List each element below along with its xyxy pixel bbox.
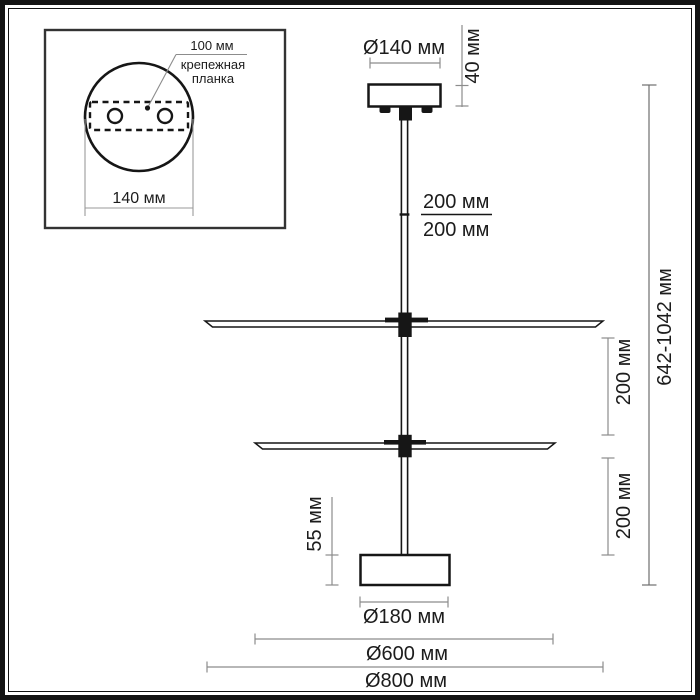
dim-tier-spacing-lower: 200 мм bbox=[602, 458, 636, 555]
canopy-foot-left bbox=[380, 107, 391, 114]
overall-height-label: 642-1042 мм bbox=[654, 268, 676, 386]
dim-lower-tier-diameter: Ø600 мм bbox=[255, 634, 553, 666]
diffuser-diameter-label: Ø180 мм bbox=[363, 606, 445, 628]
upper-disc-rod-clamp bbox=[398, 313, 411, 338]
diffuser-height-label: 55 мм bbox=[304, 496, 326, 551]
plate-name-line2: планка bbox=[192, 71, 235, 86]
plate-name-line1: крепежная bbox=[181, 57, 245, 72]
canopy-diameter-label: Ø140 мм bbox=[363, 37, 445, 59]
dim-tier-spacing-upper: 200 мм bbox=[602, 338, 636, 435]
inset-canopy-width-label: 140 мм bbox=[112, 190, 165, 207]
mounting-plate-inset: 100 мм крепежная планка 140 мм bbox=[45, 30, 285, 228]
canopy-foot-right bbox=[422, 107, 433, 114]
plate-offset-label: 100 мм bbox=[190, 38, 233, 53]
upper-tier-diameter-label: Ø800 мм bbox=[365, 670, 447, 692]
dim-rod-segments: 200 мм 200 мм bbox=[421, 191, 492, 241]
ceiling-canopy bbox=[369, 85, 441, 107]
technical-drawing-page: 100 мм крепежная планка 140 мм bbox=[0, 0, 700, 700]
plate-center-dot bbox=[145, 105, 150, 110]
lower-tier-diameter-label: Ø600 мм bbox=[366, 643, 448, 665]
dim-diffuser-diameter: Ø180 мм bbox=[360, 597, 448, 629]
dim-canopy-diameter: Ø140 мм bbox=[363, 37, 445, 69]
rod-segment-lower-label: 200 мм bbox=[423, 219, 489, 241]
rod-segment-upper-label: 200 мм bbox=[423, 191, 489, 213]
canopy-height-label: 40 мм bbox=[462, 28, 484, 83]
tier-spacing-upper-label: 200 мм bbox=[613, 339, 635, 405]
diffuser-cylinder bbox=[361, 555, 450, 585]
dim-canopy-height: 40 мм bbox=[456, 25, 485, 107]
dim-diffuser-height: 55 мм bbox=[304, 496, 339, 585]
dim-upper-tier-diameter: Ø800 мм bbox=[207, 662, 603, 693]
drawing-canvas: 100 мм крепежная планка 140 мм bbox=[0, 0, 700, 700]
lower-disc-rod-clamp bbox=[398, 435, 411, 458]
upper-tier-disc bbox=[205, 313, 603, 338]
dim-overall-height: 642-1042 мм bbox=[642, 85, 676, 585]
lower-tier-disc bbox=[255, 435, 555, 458]
tier-spacing-lower-label: 200 мм bbox=[613, 473, 635, 539]
